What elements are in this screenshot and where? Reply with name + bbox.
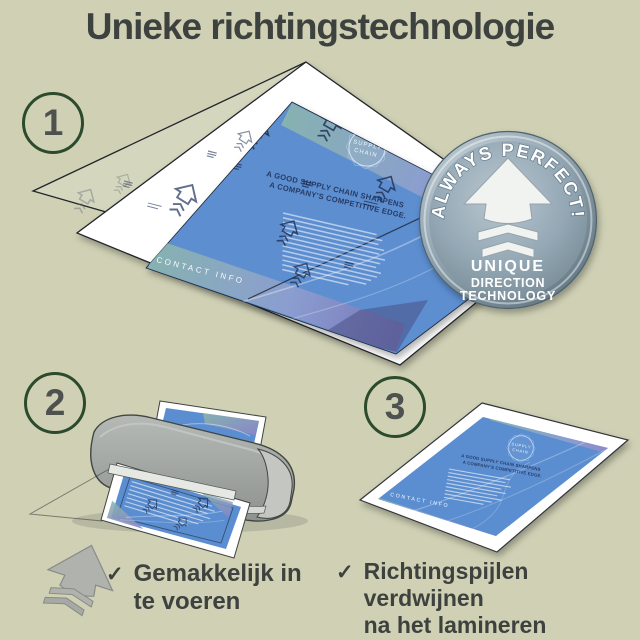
company-name: BBL CONSULTING — [408, 107, 487, 133]
bullet-1-line-2: te voeren — [134, 588, 241, 615]
step-number-1: 1 — [22, 92, 84, 154]
step-2-label: 2 — [45, 382, 66, 424]
bullet-easy-feed: ✓ Gemakkelijk in te voeren — [106, 560, 302, 616]
step-number-3: 3 — [364, 376, 426, 438]
bullet-2-line-2: na het lamineren — [364, 612, 547, 638]
illustration: A GOOD SUPPLY CHAIN SHARPENS A COMPANY'S… — [0, 0, 640, 640]
always-perfect-badge: ALWAYS PERFECT! UNIQUE DIRECTION TECHNOL… — [420, 132, 597, 309]
step-number-2: 2 — [24, 372, 86, 434]
badge-label-2: DIRECTION — [471, 276, 545, 290]
badge-label-3: TECHNOLOGY — [460, 289, 556, 303]
checkmark-icon: ✓ — [106, 562, 124, 616]
step-3-label: 3 — [385, 386, 406, 428]
page-title: Unieke richtingstechnologie — [0, 6, 640, 48]
checkmark-icon: ✓ — [336, 560, 354, 639]
bullet-2-line-1: Richtingspijlen verdwijnen — [364, 558, 529, 611]
step-1-label: 1 — [43, 102, 64, 144]
bullet-1-line-1: Gemakkelijk in — [134, 560, 302, 587]
bullet-arrows-disappear: ✓ Richtingspijlen verdwijnen na het lami… — [336, 558, 640, 639]
infographic-canvas: A GOOD SUPPLY CHAIN SHARPENS A COMPANY'S… — [0, 0, 640, 640]
badge-label-1: UNIQUE — [471, 258, 545, 275]
